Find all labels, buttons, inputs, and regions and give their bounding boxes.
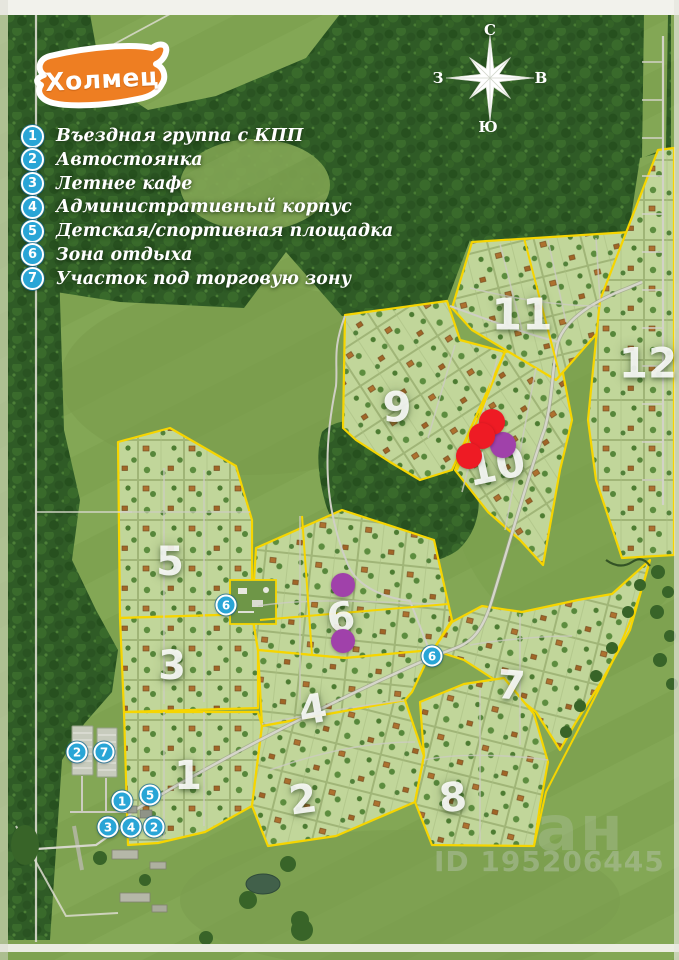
legend-item-badge: 1	[21, 125, 44, 148]
legend-item-label: Административный корпус	[56, 197, 352, 217]
settlement-title: Холмец	[43, 55, 161, 103]
legend-item-badge: 4	[21, 196, 44, 219]
section-label-12: 12	[619, 339, 677, 388]
map-badge-6: 6	[422, 646, 443, 667]
legend-item-label: Автостоянка	[56, 150, 203, 170]
legend-item: 6Зона отдыха	[21, 244, 393, 266]
legend-item: 2Автостоянка	[21, 149, 393, 171]
section-label-4: 4	[295, 685, 330, 735]
section-label-11: 11	[491, 290, 552, 341]
legend-item: 5Детская/спортивная площадка	[21, 220, 393, 242]
site-plan: Холмец 1Въездная группа с КПП2Автостоянк…	[0, 0, 679, 960]
map-badge-1: 1	[112, 791, 133, 812]
legend-item-badge: 2	[21, 148, 44, 171]
map-badge-6: 6	[216, 595, 237, 616]
legend-item-label: Детская/спортивная площадка	[56, 221, 393, 241]
legend-item-label: Летнее кафе	[56, 174, 192, 194]
legend-item-label: Зона отдыха	[56, 245, 192, 265]
section-label-8: 8	[437, 774, 469, 822]
legend-item-label: Участок под торговую зону	[56, 269, 351, 289]
map-badge-4: 4	[121, 817, 142, 838]
section-label-3: 3	[158, 643, 186, 689]
purple-marker-dot	[331, 573, 355, 597]
legend-item-badge: 6	[21, 243, 44, 266]
watermark-id: ID 195206445	[434, 845, 665, 878]
legend-item: 1Въездная группа с КПП	[21, 125, 393, 147]
compass-north-label: С	[484, 21, 496, 39]
map-badge-3: 3	[98, 817, 119, 838]
map-badge-2: 2	[67, 742, 88, 763]
legend-item: 3Летнее кафе	[21, 173, 393, 195]
legend-list: 1Въездная группа с КПП2Автостоянка3Летне…	[21, 125, 393, 292]
compass-south-label: Ю	[478, 118, 497, 136]
legend-item: 7Участок под торговую зону	[21, 268, 393, 290]
section-label-1: 1	[174, 753, 202, 799]
section-label-9: 9	[382, 383, 411, 432]
legend-item: 4Административный корпус	[21, 196, 393, 218]
map-badge-7: 7	[94, 742, 115, 763]
section-label-5: 5	[156, 539, 184, 585]
legend-item-badge: 5	[21, 220, 44, 243]
compass-west-label: З	[433, 69, 444, 87]
legend-item-label: Въездная группа с КПП	[56, 126, 303, 146]
map-badge-5: 5	[140, 785, 161, 806]
legend-item-badge: 7	[21, 267, 44, 290]
section-label-2: 2	[286, 775, 320, 824]
purple-marker-dot	[331, 629, 355, 653]
red-marker-dot	[456, 443, 482, 469]
compass-east-label: В	[535, 69, 548, 87]
map-overlay: Холмец 1Въездная группа с КПП2Автостоянк…	[0, 0, 679, 960]
section-label-7: 7	[495, 662, 527, 710]
legend-item-badge: 3	[21, 172, 44, 195]
map-badge-2: 2	[144, 817, 165, 838]
